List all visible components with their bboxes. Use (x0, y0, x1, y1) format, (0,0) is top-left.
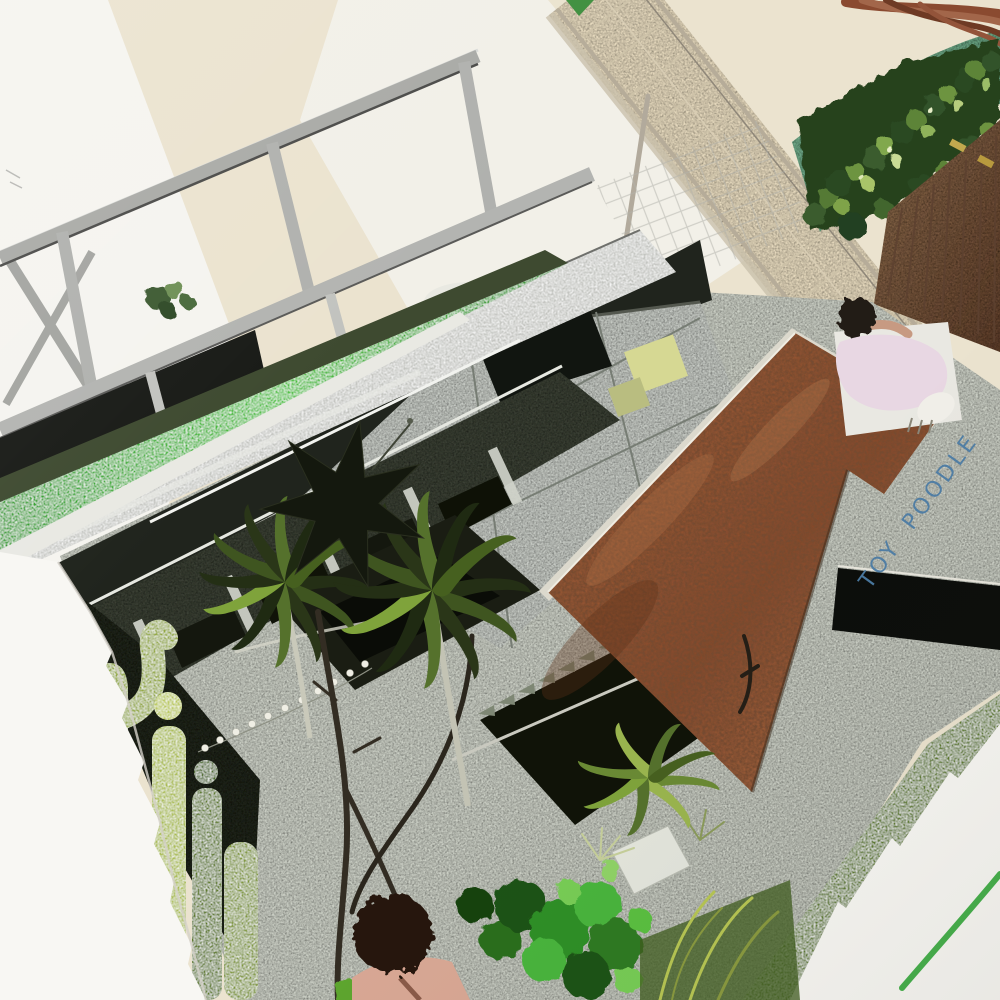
photo-light-overlay (0, 0, 1000, 1000)
artwork-photo: TOY POODLE (0, 0, 1000, 1000)
